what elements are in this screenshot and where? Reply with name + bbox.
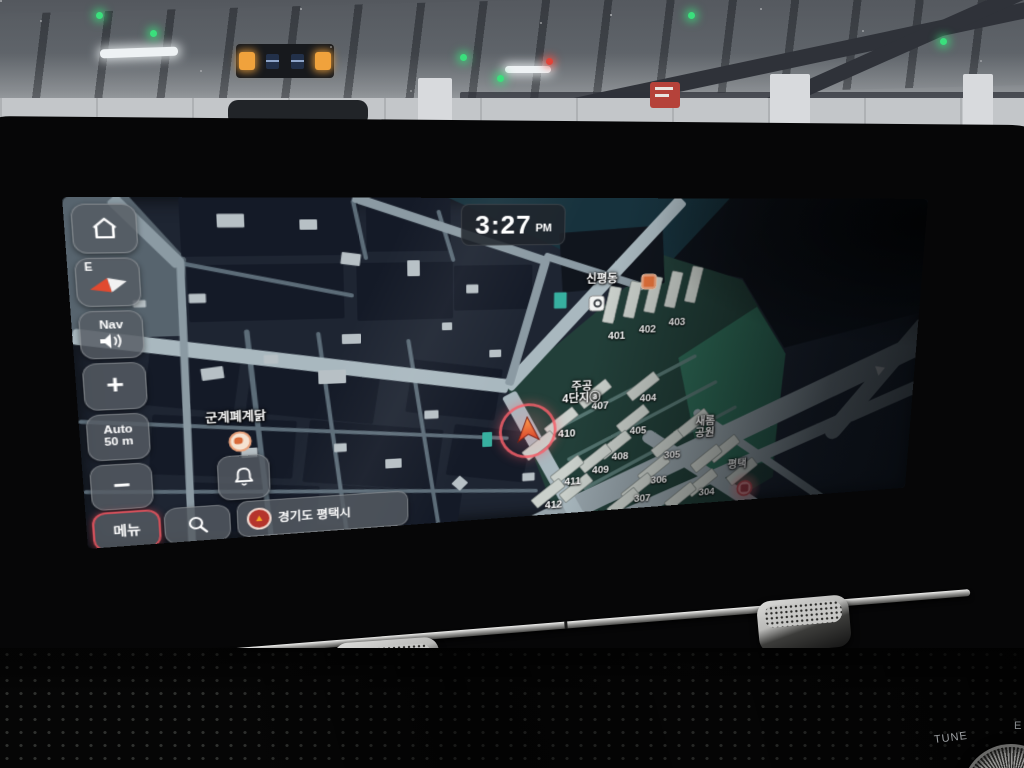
windshield-specks [0, 0, 2, 2]
map-building [554, 292, 567, 308]
green-indicator-light [150, 30, 157, 37]
map-building [318, 369, 346, 384]
amber-light [239, 52, 255, 70]
sign-screen [266, 54, 279, 69]
green-indicator-light [460, 54, 467, 61]
clock-badge: 3:27 PM [461, 204, 566, 246]
navigation-arrow-icon [515, 415, 542, 445]
zoom-out-label: − [112, 471, 131, 499]
building-number: 409 [592, 465, 609, 477]
building-number: 402 [639, 324, 656, 336]
restaurant-poi-icon[interactable] [641, 274, 657, 290]
map-scale-button[interactable]: Auto 50 m [85, 412, 151, 461]
map-building [299, 219, 317, 229]
clock-meridiem: PM [535, 223, 551, 235]
map-building [188, 294, 206, 304]
map-building [466, 284, 478, 293]
alerts-button[interactable] [217, 454, 271, 501]
building-number: 305 [664, 450, 681, 461]
map-building [342, 334, 361, 344]
apartment-building [622, 280, 643, 319]
building-number: 306 [651, 475, 668, 486]
red-indicator-light [546, 58, 553, 65]
amber-light [315, 52, 331, 70]
perforated-dash-shadow [0, 648, 1024, 768]
map-building [424, 410, 438, 419]
search-button[interactable] [163, 504, 231, 545]
garage-sign [236, 44, 334, 78]
green-indicator-light [940, 38, 947, 45]
zoom-out-button[interactable]: − [89, 462, 154, 511]
zoom-in-label: + [105, 371, 125, 400]
building-number: 410 [558, 428, 575, 440]
place-label: 새롬공원 [695, 415, 715, 439]
building-number: 412 [545, 499, 562, 511]
map-building [334, 443, 347, 452]
district-office-icon[interactable] [588, 295, 604, 311]
compass-button[interactable]: E [74, 257, 142, 307]
red-wall-sign [650, 82, 680, 108]
map-building [385, 458, 401, 468]
building-number: 411 [564, 476, 581, 488]
menu-label: 메뉴 [113, 523, 141, 538]
place-label: 신평동 [586, 272, 618, 285]
nav-volume-label: Nav [99, 320, 124, 333]
compass-heading: E [84, 263, 93, 274]
place-label: 주공4단지ⓐ [562, 380, 601, 405]
apartment-building [684, 265, 704, 304]
green-indicator-light [96, 12, 103, 19]
building-number: 404 [640, 393, 657, 405]
side-button-label: E [1014, 720, 1021, 732]
map-building [216, 214, 244, 228]
map-building [451, 475, 468, 490]
building-number: 403 [668, 317, 685, 328]
map-building [482, 432, 492, 447]
home-button[interactable] [70, 204, 139, 254]
compass-needle-icon [87, 273, 129, 298]
green-indicator-light [497, 75, 504, 82]
green-indicator-light [688, 12, 695, 19]
apartment-building [663, 270, 683, 309]
zoom-in-button[interactable]: + [82, 362, 149, 412]
menu-button[interactable]: 메뉴 [91, 509, 162, 549]
region-name: 경기도 평택시 [278, 504, 351, 525]
clock-time: 3:27 [475, 209, 532, 240]
building-number: 408 [611, 451, 628, 463]
map-building [340, 252, 361, 266]
sign-screen [291, 54, 304, 69]
map-building [489, 349, 501, 357]
map-building [522, 472, 534, 481]
map-building [442, 322, 452, 330]
fluorescent-light [505, 66, 551, 73]
map-building [200, 366, 224, 381]
place-label: 평택 [727, 458, 746, 470]
region-warning-icon: ▲ [246, 507, 272, 530]
map-building [264, 355, 279, 364]
speaker-icon [99, 332, 126, 349]
building-number: 401 [608, 330, 625, 342]
dashboard-vent-right[interactable] [756, 594, 852, 654]
map-building [407, 260, 420, 276]
place-label: 군계폐계닭 [205, 410, 267, 426]
home-icon [89, 217, 120, 241]
nav-volume-button[interactable]: Nav [78, 310, 145, 360]
building-number: 405 [630, 425, 647, 437]
building-number: 304 [698, 487, 714, 498]
car-dashboard-photo: 4014024034044054074084094104114123043053… [0, 0, 1024, 768]
building-number: 307 [634, 493, 651, 505]
map-scale-value: 50 m [104, 436, 134, 449]
bell-icon [231, 466, 256, 489]
search-icon [186, 514, 209, 535]
